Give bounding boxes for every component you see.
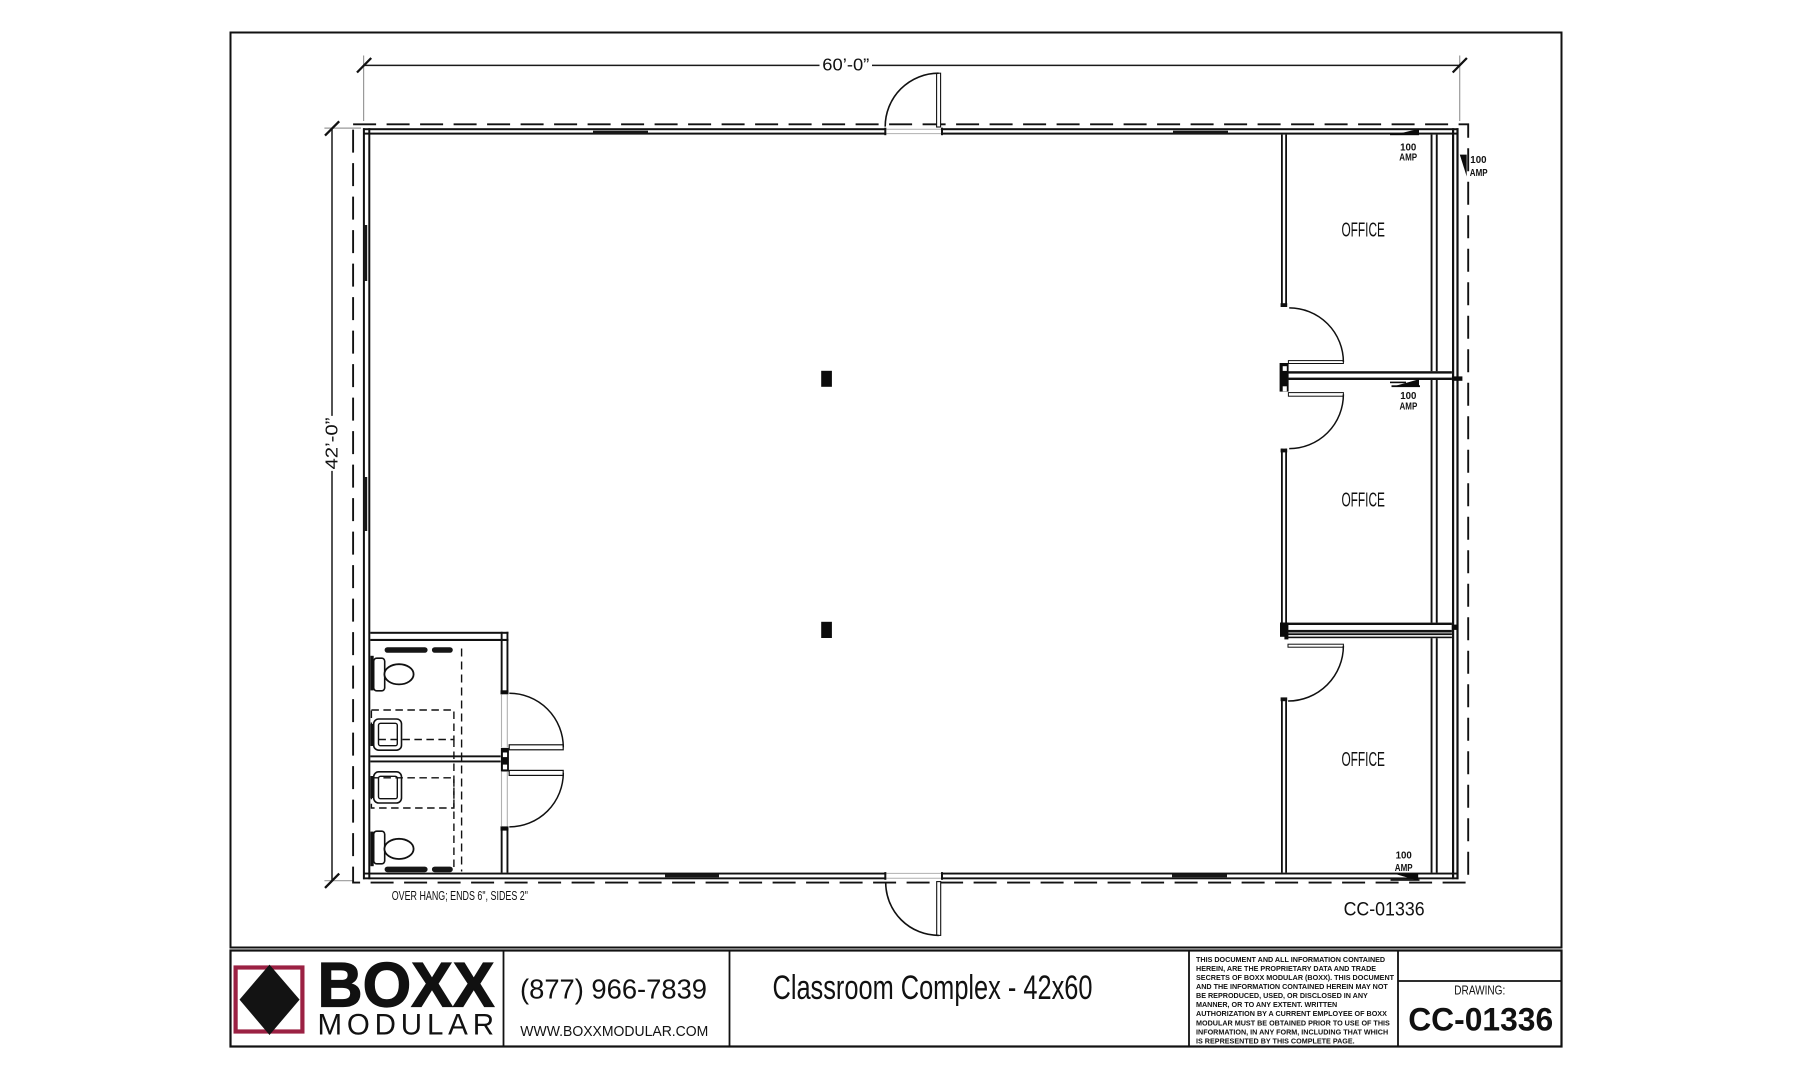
- svg-text:MANNER, OR TO ANY EXTENT. WRI: MANNER, OR TO ANY EXTENT. WRITTEN: [1196, 1000, 1337, 1009]
- svg-text:AMP: AMP: [1395, 863, 1413, 874]
- svg-text:(877) 966-7839: (877) 966-7839: [520, 973, 707, 1004]
- svg-text:42’-0”: 42’-0”: [322, 417, 342, 469]
- svg-text:MODULAR MUST BE OBTAINED PRIOR: MODULAR MUST BE OBTAINED PRIOR TO USE OF…: [1196, 1018, 1390, 1027]
- svg-text:WWW.BOXXMODULAR.COM: WWW.BOXXMODULAR.COM: [520, 1023, 708, 1040]
- svg-text:AMP: AMP: [1399, 152, 1417, 163]
- svg-text:Classroom Complex - 42x60: Classroom Complex - 42x60: [773, 969, 1093, 1007]
- svg-text:THIS DOCUMENT AND ALL INFORMAT: THIS DOCUMENT AND ALL INFORMATION CONTAI…: [1196, 955, 1385, 964]
- svg-text:BE REPRODUCED, USED, OR DISCLO: BE REPRODUCED, USED, OR DISCLOSED IN ANY: [1196, 991, 1368, 1000]
- svg-text:AMP: AMP: [1470, 168, 1488, 179]
- svg-text:100: 100: [1396, 851, 1413, 862]
- svg-text:CC-01336: CC-01336: [1344, 899, 1425, 921]
- svg-text:100: 100: [1470, 155, 1487, 166]
- svg-text:HEREIN, ARE THE PROPRIETARY DA: HEREIN, ARE THE PROPRIETARY DATA AND TRA…: [1196, 964, 1376, 973]
- svg-text:OFFICE: OFFICE: [1341, 488, 1385, 511]
- svg-text:DRAWING:: DRAWING:: [1454, 983, 1505, 998]
- svg-text:OFFICE: OFFICE: [1341, 748, 1385, 771]
- svg-text:60’-0”: 60’-0”: [822, 55, 869, 75]
- svg-text:INFORMATION, IN ANY FORM, INCL: INFORMATION, IN ANY FORM, INCLUDING THAT…: [1196, 1027, 1388, 1036]
- svg-text:AMP: AMP: [1400, 401, 1418, 412]
- svg-text:AUTHORIZATION BY A CURRENT EMP: AUTHORIZATION BY A CURRENT EMPLOYEE OF B…: [1196, 1009, 1387, 1018]
- svg-text:SECRETS OF BOXX MODULAR (BOXX): SECRETS OF BOXX MODULAR (BOXX). THIS DOC…: [1196, 973, 1395, 982]
- svg-text:CC-01336: CC-01336: [1408, 1002, 1553, 1038]
- svg-text:OVER HANG; ENDS 6", SIDES 2": OVER HANG; ENDS 6", SIDES 2": [392, 889, 528, 903]
- svg-text:IS REPRESENTED BY THIS COMPLET: IS REPRESENTED BY THIS COMPLETE PAGE.: [1196, 1036, 1355, 1045]
- svg-text:OFFICE: OFFICE: [1341, 218, 1385, 241]
- svg-text:AND THE INFORMATION CONTAINED: AND THE INFORMATION CONTAINED HEREIN MAY…: [1196, 982, 1388, 991]
